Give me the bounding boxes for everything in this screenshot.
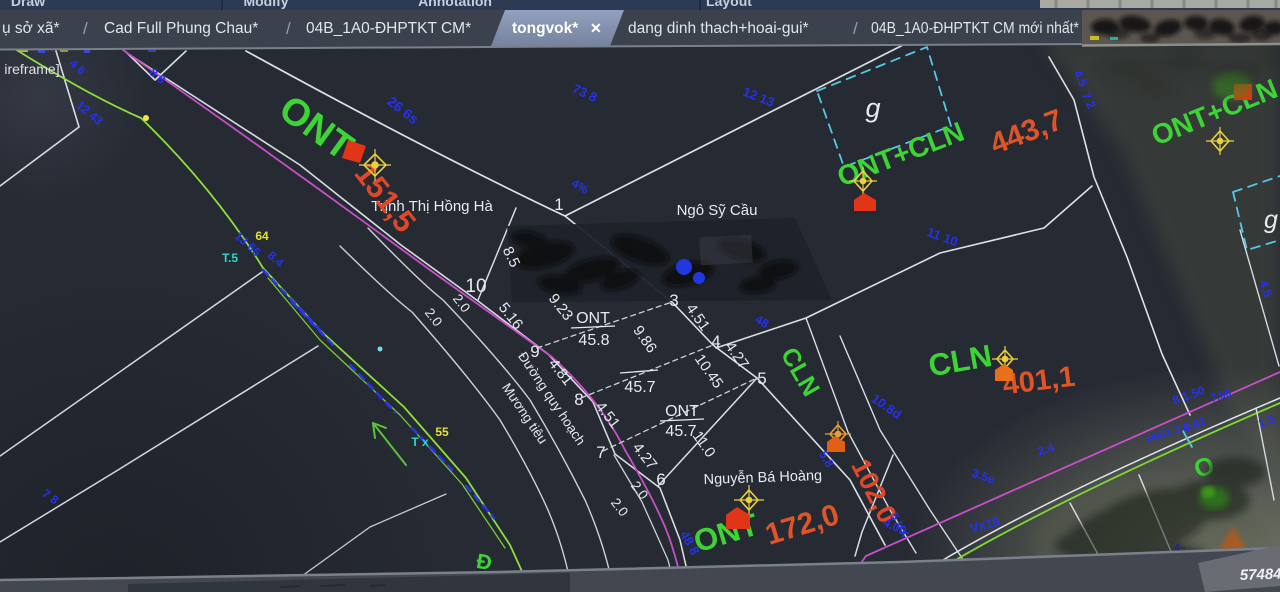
svg-text:45.7: 45.7	[624, 379, 655, 396]
svg-text:g: g	[1264, 206, 1278, 234]
svg-text:10: 10	[465, 276, 486, 297]
svg-text:ONT: ONT	[576, 310, 610, 327]
svg-text:5: 5	[757, 369, 766, 388]
svg-text:tongvok*: tongvok*	[512, 20, 579, 37]
svg-text:Cad Full Phung Chau*: Cad Full Phung Chau*	[104, 20, 258, 37]
svg-text:1: 1	[554, 195, 563, 214]
svg-text:T x: T x	[411, 435, 429, 449]
svg-text:45.7: 45.7	[665, 423, 696, 440]
svg-text:7: 7	[596, 443, 605, 462]
svg-text:T.5: T.5	[222, 251, 238, 265]
svg-text:45.8: 45.8	[578, 332, 609, 349]
svg-text:4: 4	[711, 332, 720, 351]
svg-text:8: 8	[574, 390, 583, 409]
svg-text:64: 64	[255, 229, 269, 243]
svg-text:ireframe]: ireframe]	[4, 61, 59, 77]
svg-text:04B_1A0-ĐHPTKT CM mới nhất*: 04B_1A0-ĐHPTKT CM mới nhất*	[871, 20, 1079, 37]
svg-text:✕: ✕	[590, 20, 602, 36]
svg-text:ONT: ONT	[665, 403, 699, 420]
svg-text:Ngô Sỹ Cầu: Ngô Sỹ Cầu	[677, 202, 758, 219]
svg-text:6: 6	[656, 470, 665, 489]
svg-text:g: g	[865, 93, 880, 123]
svg-text:/: /	[853, 19, 858, 38]
svg-text:ụ sở xã*: ụ sở xã*	[2, 20, 60, 37]
svg-text:04B_1A0-ĐHPTKT CM*: 04B_1A0-ĐHPTKT CM*	[306, 20, 471, 37]
svg-text:57484: 57484	[1240, 566, 1280, 584]
svg-text:/: /	[286, 19, 291, 38]
svg-text:dang dinh thach+hoai-gui*: dang dinh thach+hoai-gui*	[628, 20, 809, 37]
svg-text:Modify: Modify	[243, 0, 288, 9]
svg-text:/: /	[83, 19, 88, 38]
svg-text:3: 3	[669, 291, 678, 310]
svg-text:Draw: Draw	[11, 0, 45, 9]
svg-text:Layout: Layout	[706, 0, 752, 9]
svg-text:Annotation: Annotation	[418, 0, 492, 9]
svg-text:55: 55	[435, 425, 449, 439]
